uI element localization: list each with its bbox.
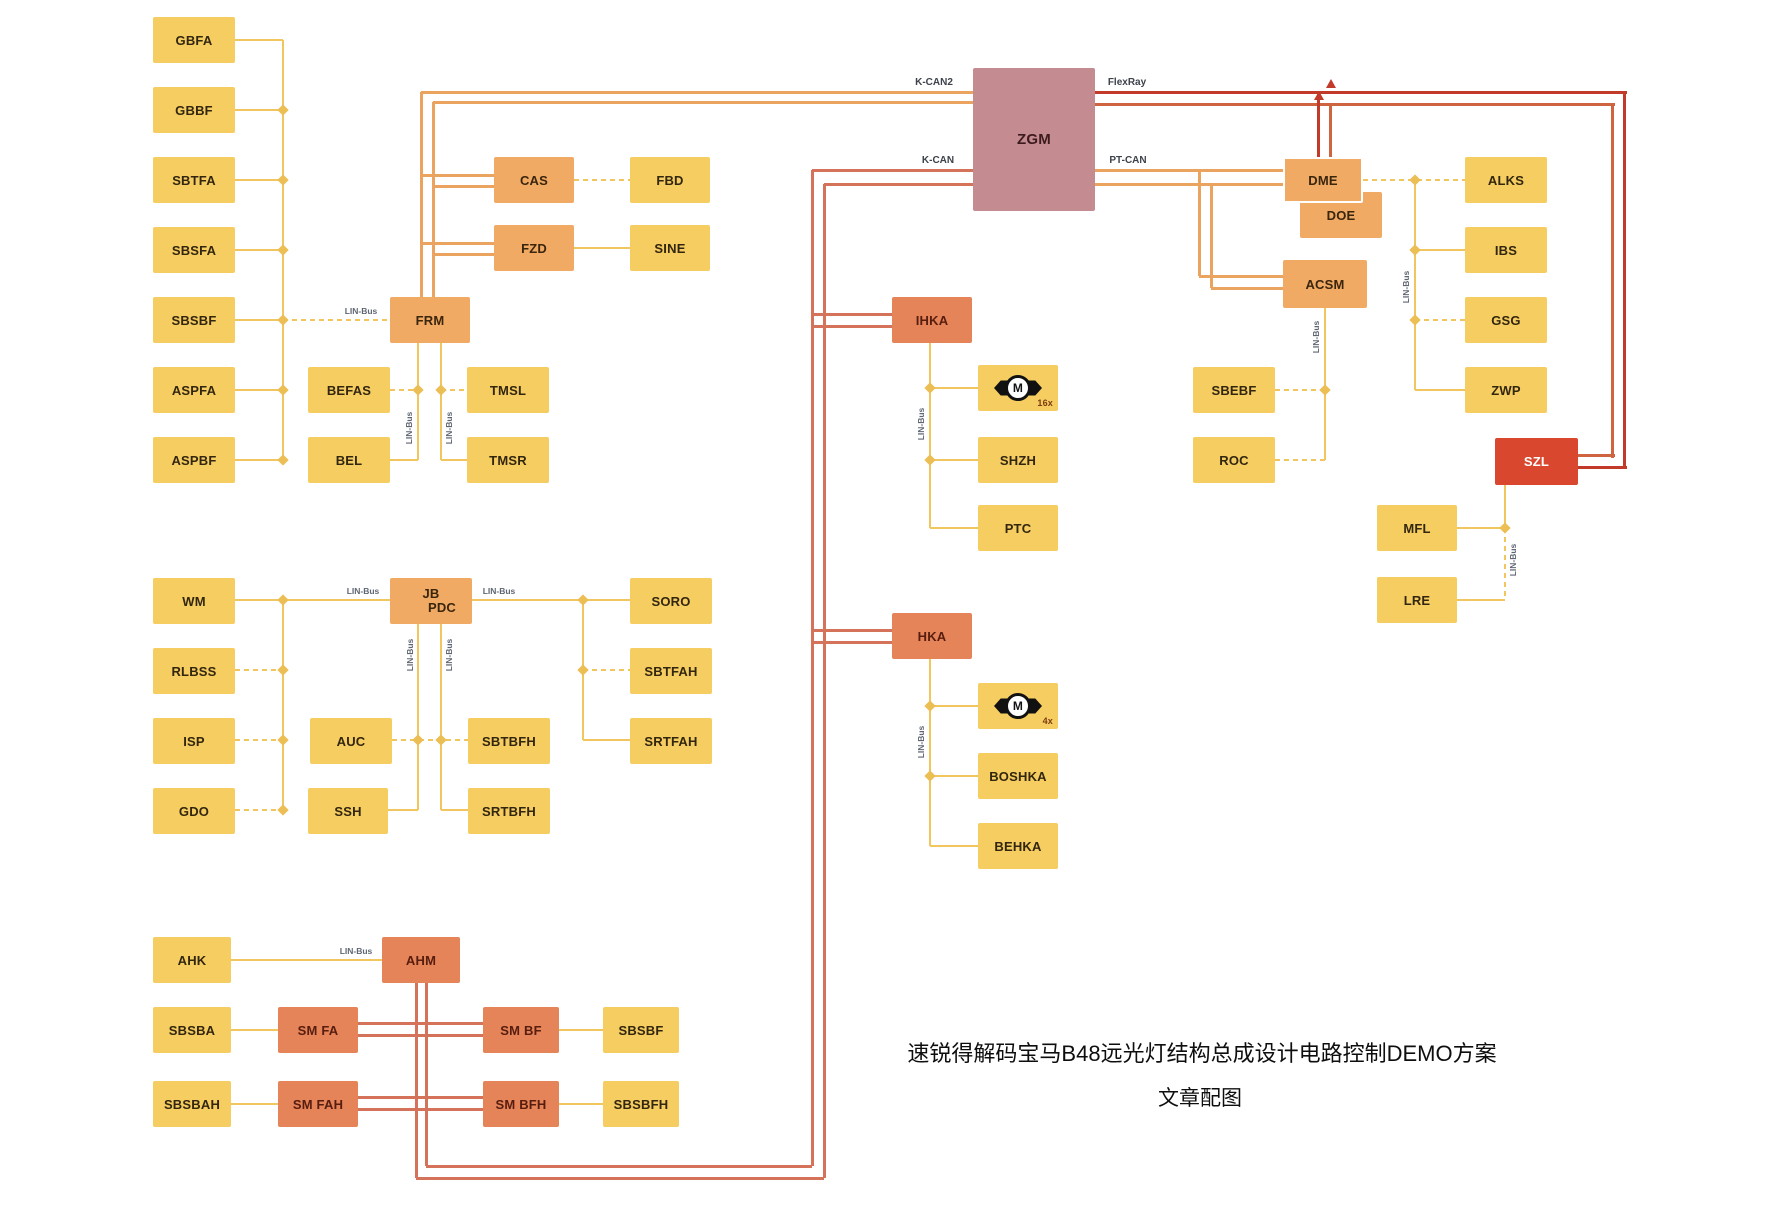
- node-roc: ROC: [1193, 437, 1275, 483]
- junction-diamond-icon: [924, 700, 935, 711]
- node-sm-bf: SM BF: [483, 1007, 559, 1053]
- node-label: RLBSS: [171, 664, 216, 679]
- bus-line: [392, 739, 468, 741]
- node-label: LRE: [1404, 593, 1431, 608]
- junction-diamond-icon: [924, 382, 935, 393]
- node-fzd: FZD: [494, 225, 574, 271]
- node-label: SBSFA: [172, 243, 216, 258]
- bus-line: [1578, 466, 1627, 469]
- node-sbsbfh: SBSBFH: [603, 1081, 679, 1127]
- bus-line: [231, 1103, 278, 1105]
- node-label: MFL: [1403, 521, 1430, 536]
- node-label: TMSL: [490, 383, 526, 398]
- node-label: TMSR: [489, 453, 527, 468]
- junction-diamond-icon: [924, 770, 935, 781]
- lin-bus-label: LIN-Bus: [444, 639, 454, 672]
- bus-line: [812, 641, 892, 644]
- bus-line: [432, 102, 435, 297]
- bus-line: [812, 325, 892, 328]
- junction-diamond-icon: [277, 384, 288, 395]
- bus-line: [1611, 104, 1614, 458]
- bus-line: [231, 959, 382, 961]
- node-label: SBTBFH: [482, 734, 536, 749]
- bus-line: [235, 319, 283, 321]
- bus-line: [1095, 183, 1283, 186]
- bus-line: [282, 600, 284, 810]
- bus-line: [1095, 91, 1627, 94]
- lin-bus-label: LIN-Bus: [916, 408, 926, 441]
- bus-line: [415, 983, 418, 1178]
- node-boshka: BOSHKA: [978, 753, 1058, 799]
- bus-line: [235, 179, 283, 181]
- junction-diamond-icon: [277, 804, 288, 815]
- node-shzh: SHZH: [978, 437, 1058, 483]
- bus-line: [1415, 319, 1465, 321]
- junction-diamond-icon: [277, 244, 288, 255]
- lin-bus-label: LIN-Bus: [444, 412, 454, 445]
- bus-line: [1414, 180, 1416, 390]
- bus-line: [574, 179, 630, 181]
- bus-line: [440, 623, 442, 810]
- node-label: SORO: [651, 594, 690, 609]
- node-ihka: IHKA: [892, 297, 972, 343]
- node-szl: SZL: [1495, 438, 1578, 485]
- node-label: ASPBF: [171, 453, 216, 468]
- bus-line: [812, 629, 892, 632]
- bus-line: [235, 249, 283, 251]
- bus-line: [1317, 92, 1320, 157]
- bus-line: [1457, 599, 1505, 601]
- bus-line: [812, 313, 892, 316]
- bus-line: [583, 739, 630, 741]
- node-label: ROC: [1219, 453, 1249, 468]
- node-sbsba: SBSBA: [153, 1007, 231, 1053]
- node-isp: ISP: [153, 718, 235, 764]
- node-label: ISP: [183, 734, 205, 749]
- junction-diamond-icon: [277, 104, 288, 115]
- node-label: SM BF: [500, 1023, 541, 1038]
- node-label: FRM: [416, 313, 445, 328]
- arrowhead-icon: [1326, 79, 1336, 88]
- junction-diamond-icon: [577, 664, 588, 675]
- node-alks: ALKS: [1465, 157, 1547, 203]
- junction-diamond-icon: [277, 664, 288, 675]
- node-tmsl: TMSL: [467, 367, 549, 413]
- node-label: WM: [182, 594, 206, 609]
- node-sm-fah: SM FAH: [278, 1081, 358, 1127]
- lin-bus-label: LIN-Bus: [345, 306, 378, 316]
- node-gsg: GSG: [1465, 297, 1547, 343]
- node-label: IHKA: [916, 313, 949, 328]
- junction-diamond-icon: [277, 594, 288, 605]
- lin-bus-label: LIN-Bus: [1311, 321, 1321, 354]
- junction-diamond-icon: [1499, 522, 1510, 533]
- node-sm-fa: SM FA: [278, 1007, 358, 1053]
- bus-line: [929, 343, 931, 528]
- node-lre: LRE: [1377, 577, 1457, 623]
- bus-line: [574, 247, 630, 249]
- bus-line: [1275, 459, 1325, 461]
- node-wm: WM: [153, 578, 235, 624]
- bus-line: [390, 459, 418, 461]
- node-soro: SORO: [630, 578, 712, 624]
- node-label: SBTFA: [172, 173, 216, 188]
- node-label: SM FAH: [293, 1097, 343, 1112]
- node-label: ACSM: [1305, 277, 1344, 292]
- bus-name-label: FlexRay: [1108, 77, 1146, 88]
- node-zgm: ZGM: [973, 68, 1095, 211]
- lin-bus-label: LIN-Bus: [483, 586, 516, 596]
- node-label: SHZH: [1000, 453, 1036, 468]
- junction-diamond-icon: [277, 314, 288, 325]
- junction-diamond-icon: [277, 174, 288, 185]
- junction-diamond-icon: [277, 454, 288, 465]
- bus-line: [235, 459, 283, 461]
- bus-line: [930, 527, 978, 529]
- bus-line: [930, 459, 978, 461]
- bus-line: [929, 659, 931, 846]
- bus-line: [441, 809, 468, 811]
- node-label: JBPDC: [406, 587, 456, 615]
- bus-line: [417, 623, 419, 810]
- node-motor-4x: M4x: [978, 683, 1058, 729]
- junction-diamond-icon: [577, 594, 588, 605]
- node-aspbf: ASPBF: [153, 437, 235, 483]
- node-zwp: ZWP: [1465, 367, 1547, 413]
- node-label: ALKS: [1488, 173, 1524, 188]
- motor-m-icon: M: [1005, 693, 1031, 719]
- node-label: FBD: [656, 173, 683, 188]
- bus-line: [421, 242, 494, 245]
- bus-line: [1415, 249, 1465, 251]
- node-sbsfa: SBSFA: [153, 227, 235, 273]
- bus-line: [358, 1022, 483, 1025]
- bus-line: [1329, 104, 1332, 157]
- node-label: GSG: [1491, 313, 1521, 328]
- bus-line: [1210, 184, 1213, 288]
- bus-line: [433, 185, 494, 188]
- lin-bus-label: LIN-Bus: [405, 639, 415, 672]
- node-srtbfh: SRTBFH: [468, 788, 550, 834]
- bus-line: [1275, 389, 1325, 391]
- bus-line: [1457, 527, 1505, 529]
- bus-line: [235, 389, 283, 391]
- node-sbtbfh: SBTBFH: [468, 718, 550, 764]
- node-sbsbah: SBSBAH: [153, 1081, 231, 1127]
- motor-count-label: 16x: [1037, 398, 1053, 408]
- node-ibs: IBS: [1465, 227, 1547, 273]
- node-label: BEHKA: [994, 839, 1041, 854]
- node-gbbf: GBBF: [153, 87, 235, 133]
- node-label: IBS: [1495, 243, 1517, 258]
- node-sbsbf: SBSBF: [153, 297, 235, 343]
- bus-name-label: K-CAN2: [915, 77, 953, 88]
- junction-diamond-icon: [277, 734, 288, 745]
- node-label: AUC: [337, 734, 366, 749]
- node-label: SRTBFH: [482, 804, 536, 819]
- bus-line: [421, 91, 973, 94]
- node-jb-pdc: JBPDC: [390, 578, 472, 624]
- bus-name-label: PT-CAN: [1109, 155, 1146, 166]
- bus-line: [930, 775, 978, 777]
- lin-bus-label: LIN-Bus: [340, 946, 373, 956]
- node-label: SBSBF: [618, 1023, 663, 1038]
- bus-line: [235, 809, 283, 811]
- node-label: GBFA: [176, 33, 213, 48]
- node-dme: DME: [1283, 157, 1363, 203]
- node-label: SM FA: [298, 1023, 339, 1038]
- node-label: SZL: [1524, 454, 1549, 469]
- bus-line: [1199, 275, 1283, 278]
- bus-line: [823, 184, 826, 1178]
- node-label: DOE: [1327, 208, 1356, 223]
- bus-line: [235, 669, 283, 671]
- bus-line: [421, 174, 494, 177]
- lin-bus-label: LIN-Bus: [404, 412, 414, 445]
- bus-line: [824, 183, 973, 186]
- node-gbfa: GBFA: [153, 17, 235, 63]
- bus-line: [433, 101, 973, 104]
- node-sbebf: SBEBF: [1193, 367, 1275, 413]
- bus-line: [441, 459, 467, 461]
- bus-line: [420, 92, 423, 297]
- node-cas: CAS: [494, 157, 574, 203]
- caption-line1: 速锐得解码宝马B48远光灯结构总成设计电路控制DEMO方案: [907, 1036, 1496, 1068]
- arrowhead-icon: [1314, 91, 1324, 100]
- node-label: ASPFA: [172, 383, 216, 398]
- node-srtfah: SRTFAH: [630, 718, 712, 764]
- node-label: ZGM: [1017, 131, 1051, 148]
- bus-line: [440, 343, 442, 460]
- node-label: GDO: [179, 804, 209, 819]
- bus-line: [1211, 287, 1283, 290]
- junction-diamond-icon: [1319, 384, 1330, 395]
- caption-line2: 文章配图: [1158, 1082, 1242, 1112]
- node-ahk: AHK: [153, 937, 231, 983]
- node-label: SBSBFH: [614, 1097, 669, 1112]
- bus-line: [1095, 103, 1615, 106]
- bus-line: [930, 387, 978, 389]
- junction-diamond-icon: [435, 734, 446, 745]
- node-hka: HKA: [892, 613, 972, 659]
- node-label: AHM: [406, 953, 436, 968]
- diagram-canvas: 速锐得解码宝马B48远光灯结构总成设计电路控制DEMO方案 文章配图 GBFAG…: [0, 0, 1772, 1208]
- bus-name-label: K-CAN: [922, 155, 954, 166]
- bus-line: [1504, 528, 1506, 600]
- bus-line: [426, 1165, 812, 1168]
- junction-diamond-icon: [435, 384, 446, 395]
- bus-line: [472, 599, 630, 601]
- lin-bus-label: LIN-Bus: [347, 586, 380, 596]
- node-label: SINE: [654, 241, 685, 256]
- node-frm: FRM: [390, 297, 470, 343]
- node-befas: BEFAS: [308, 367, 390, 413]
- node-fbd: FBD: [630, 157, 710, 203]
- bus-line: [930, 845, 978, 847]
- node-sm-bfh: SM BFH: [483, 1081, 559, 1127]
- node-sbsbf-2: SBSBF: [603, 1007, 679, 1053]
- bus-line: [235, 39, 283, 41]
- junction-diamond-icon: [1409, 174, 1420, 185]
- bus-line: [930, 705, 978, 707]
- node-label: SBSBF: [171, 313, 216, 328]
- bus-line: [1095, 169, 1283, 172]
- node-sbtfa: SBTFA: [153, 157, 235, 203]
- node-gdo: GDO: [153, 788, 235, 834]
- node-label: CAS: [520, 173, 548, 188]
- junction-diamond-icon: [1409, 314, 1420, 325]
- node-sbtfah: SBTFAH: [630, 648, 712, 694]
- node-auc: AUC: [310, 718, 392, 764]
- motor-m-icon: M: [1005, 375, 1031, 401]
- node-acsm: ACSM: [1283, 260, 1367, 308]
- node-label: BOSHKA: [989, 769, 1047, 784]
- junction-diamond-icon: [412, 734, 423, 745]
- node-label: HKA: [918, 629, 947, 644]
- bus-line: [1623, 92, 1626, 467]
- bus-line: [235, 109, 283, 111]
- lin-bus-label: LIN-Bus: [916, 726, 926, 759]
- node-ptc: PTC: [978, 505, 1058, 551]
- bus-line: [235, 599, 390, 601]
- node-label: ZWP: [1491, 383, 1520, 398]
- node-sine: SINE: [630, 225, 710, 271]
- bus-line: [1198, 170, 1201, 276]
- node-ssh: SSH: [308, 788, 388, 834]
- bus-line: [583, 669, 630, 671]
- node-motor-16x: M16x: [978, 365, 1058, 411]
- bus-line: [388, 809, 418, 811]
- junction-diamond-icon: [1409, 244, 1420, 255]
- bus-line: [231, 1029, 278, 1031]
- node-label: SRTFAH: [644, 734, 697, 749]
- lin-bus-label: LIN-Bus: [1508, 544, 1518, 577]
- node-label: SBSBA: [169, 1023, 216, 1038]
- bus-line: [358, 1108, 483, 1111]
- node-rlbss: RLBSS: [153, 648, 235, 694]
- bus-line: [1415, 389, 1465, 391]
- node-bel: BEL: [308, 437, 390, 483]
- junction-diamond-icon: [924, 454, 935, 465]
- node-label: DME: [1308, 173, 1338, 188]
- bus-line: [358, 1034, 483, 1037]
- bus-line: [559, 1103, 603, 1105]
- node-label: PTC: [1005, 521, 1032, 536]
- node-label: SSH: [334, 804, 361, 819]
- node-label: BEL: [336, 453, 363, 468]
- bus-line: [358, 1096, 483, 1099]
- node-label: SBEBF: [1211, 383, 1256, 398]
- node-label: FZD: [521, 241, 547, 256]
- node-mfl: MFL: [1377, 505, 1457, 551]
- bus-line: [433, 253, 494, 256]
- bus-line: [812, 169, 973, 172]
- bus-line: [559, 1029, 603, 1031]
- lin-bus-label: LIN-Bus: [1401, 271, 1411, 304]
- bus-line: [235, 739, 283, 741]
- bus-line: [283, 319, 390, 321]
- node-label: GBBF: [175, 103, 213, 118]
- node-aspfa: ASPFA: [153, 367, 235, 413]
- node-label: SBSBAH: [164, 1097, 220, 1112]
- bus-line: [417, 343, 419, 460]
- bus-line: [811, 170, 814, 1166]
- node-label: AHK: [178, 953, 207, 968]
- node-ahm: AHM: [382, 937, 460, 983]
- bus-line: [425, 983, 428, 1166]
- junction-diamond-icon: [412, 384, 423, 395]
- bus-line: [416, 1177, 824, 1180]
- node-tmsr: TMSR: [467, 437, 549, 483]
- node-label: SBTFAH: [644, 664, 697, 679]
- node-behka: BEHKA: [978, 823, 1058, 869]
- motor-count-label: 4x: [1043, 716, 1053, 726]
- node-label: SM BFH: [495, 1097, 546, 1112]
- bus-line: [1578, 454, 1615, 457]
- node-label: BEFAS: [327, 383, 371, 398]
